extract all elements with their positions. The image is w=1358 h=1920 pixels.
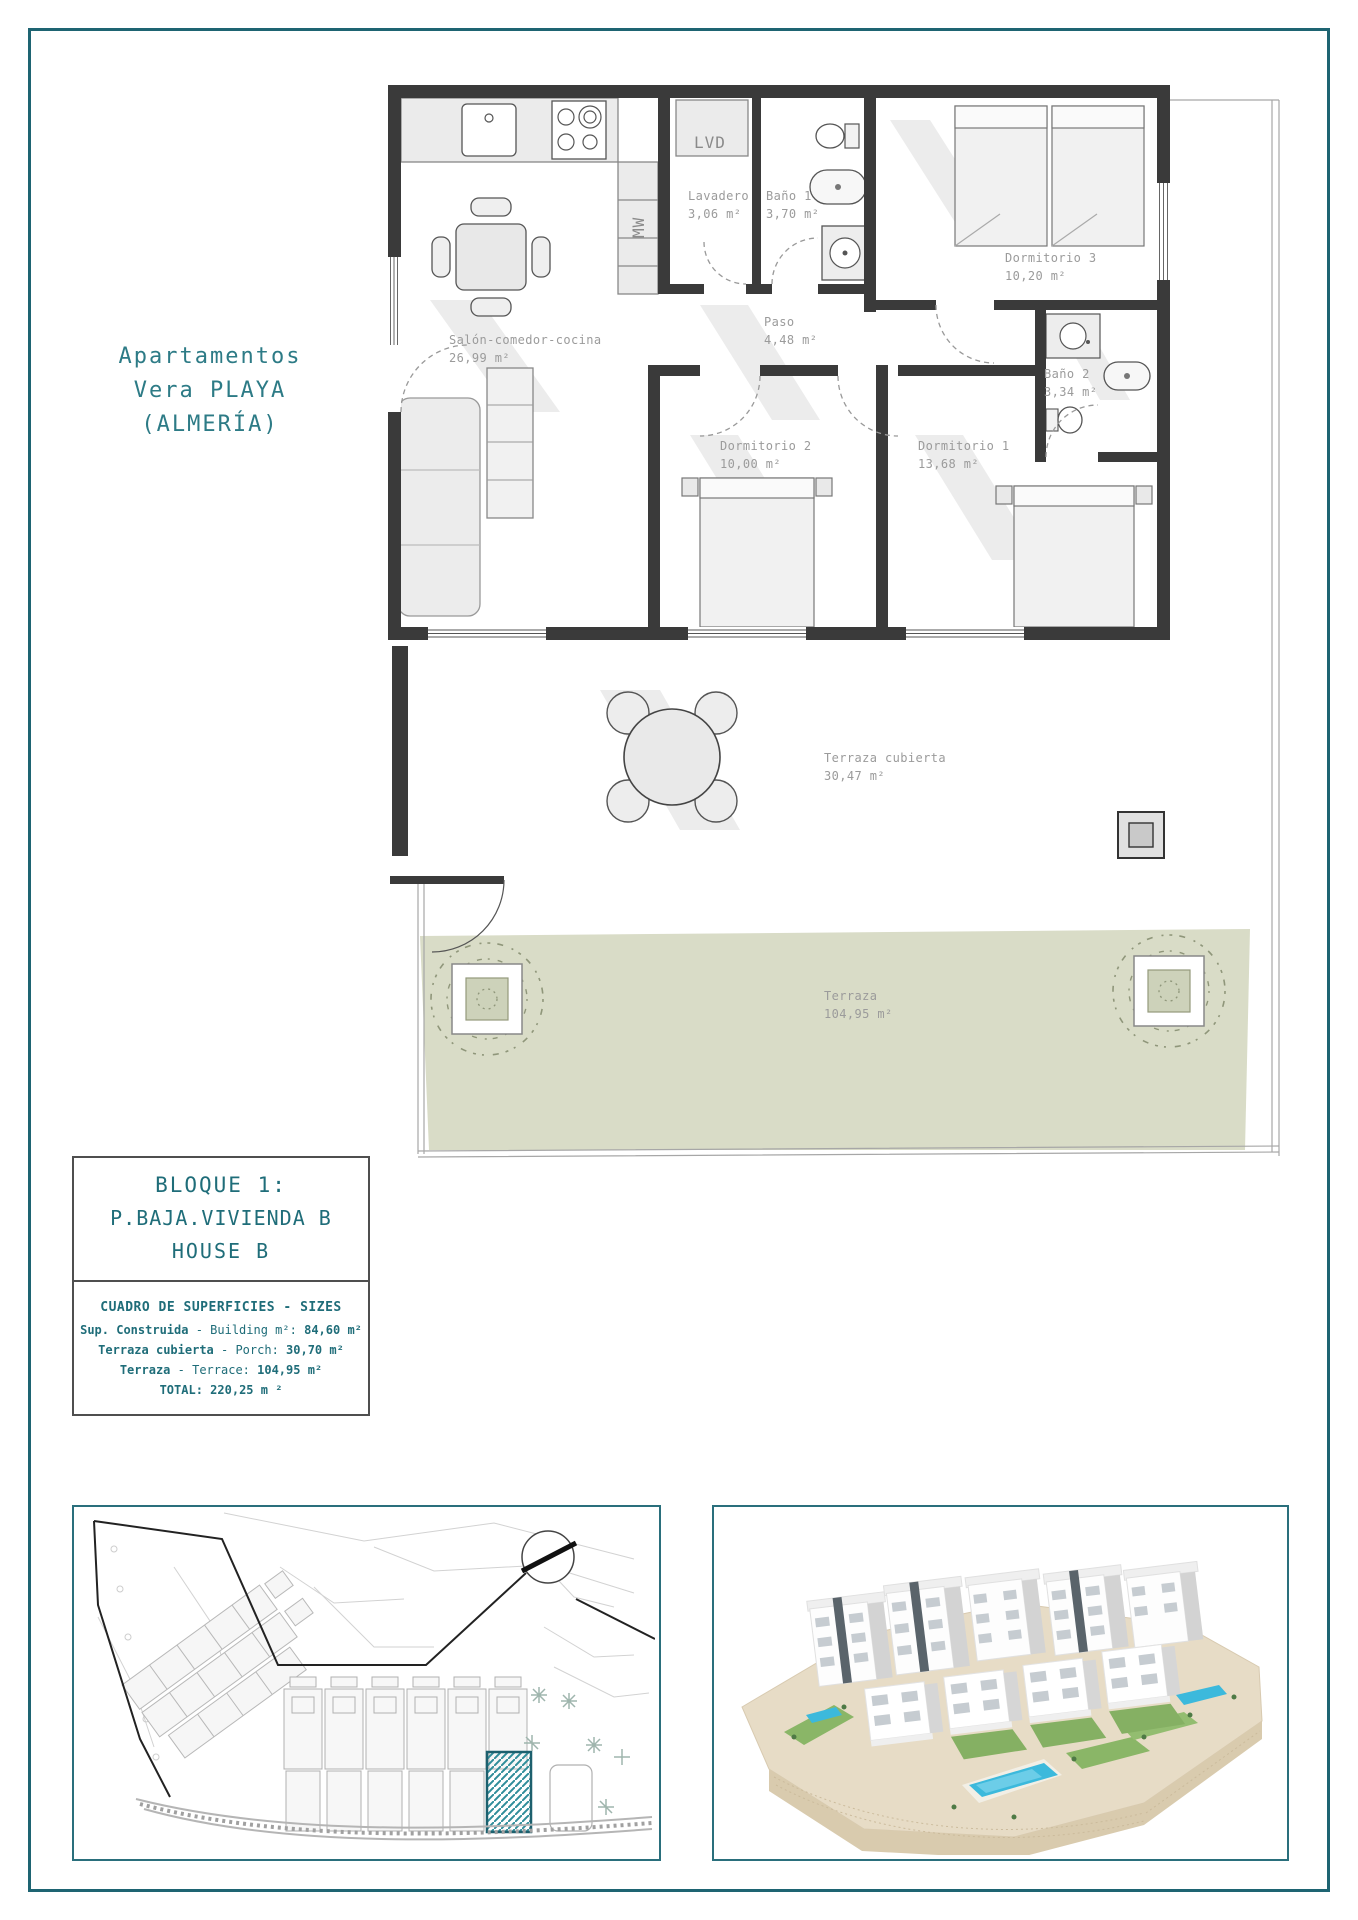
dining-set: [432, 198, 550, 316]
block-title-line3: HOUSE B: [78, 1235, 364, 1268]
label-bano1: Baño 1: [766, 189, 812, 203]
label-lavadero-area: 3,06 m²: [688, 207, 741, 221]
bbq-column: [1118, 812, 1164, 858]
label-bano2: Baño 2: [1044, 367, 1090, 381]
label-salon: Salón-comedor-cocina: [449, 333, 602, 347]
sizes-row-porch: Terraza cubierta - Porch: 30,70 m²: [76, 1340, 366, 1360]
label-terraza-area: 104,95 m²: [824, 1007, 893, 1021]
sizes-row-porch-value: 30,70 m²: [286, 1343, 344, 1357]
sizes-row-building-value: 84,60 m²: [304, 1323, 362, 1337]
project-title-line1: Apartamentos: [76, 340, 344, 374]
label-dormitorio1: Dormitorio 1: [918, 439, 1010, 453]
highlighted-unit-hatch: [487, 1752, 531, 1832]
project-title: Apartamentos Vera PLAYA (ALMERÍA): [76, 340, 344, 442]
sizes-row-terrace-en: - Terrace:: [178, 1363, 250, 1377]
site-plan: [74, 1507, 655, 1855]
block-title-line1: BLOQUE 1:: [78, 1168, 364, 1202]
label-lavadero: Lavadero: [688, 189, 749, 203]
label-dormitorio1-area: 13,68 m²: [918, 457, 979, 471]
info-box: BLOQUE 1: P.BAJA.VIVIENDA B HOUSE B CUAD…: [72, 1156, 370, 1416]
label-dormitorio2-area: 10,00 m²: [720, 457, 781, 471]
plan-sheet-page: Apartamentos Vera PLAYA (ALMERÍA): [0, 0, 1358, 1920]
bedroom3-beds: [955, 106, 1144, 246]
bedroom1-bed: [996, 486, 1152, 627]
render-3d: [714, 1507, 1283, 1855]
sizes-table-title: CUADRO DE SUPERFICIES - SIZES: [76, 1298, 366, 1318]
terrace-furniture: [390, 692, 1164, 952]
project-title-line3: (ALMERÍA): [76, 408, 344, 442]
render-3d-box: [712, 1505, 1289, 1861]
sizes-row-terrace: Terraza - Terrace: 104,95 m²: [76, 1360, 366, 1380]
label-mw: MW: [629, 217, 648, 238]
label-paso: Paso: [764, 315, 795, 329]
sizes-row-total-es: TOTAL:: [160, 1383, 203, 1397]
compass: [522, 1531, 576, 1583]
label-salon-area: 26,99 m²: [449, 351, 510, 365]
label-paso-area: 4,48 m²: [764, 333, 817, 347]
sizes-row-total-value: 220,25 m ²: [210, 1383, 282, 1397]
label-dormitorio3: Dormitorio 3: [1005, 251, 1097, 265]
project-title-line2: Vera PLAYA: [76, 374, 344, 408]
outdoor-table: [624, 709, 720, 805]
sizes-row-porch-en: - Porch:: [221, 1343, 279, 1357]
sizes-table: CUADRO DE SUPERFICIES - SIZES Sup. Const…: [74, 1282, 368, 1414]
sizes-row-total: TOTAL: 220,25 m ²: [76, 1380, 366, 1400]
floor-plan: Salón-comedor-cocina 26,99 m² Lavadero 3…: [330, 60, 1290, 1180]
sizes-row-porch-es: Terraza cubierta: [98, 1343, 214, 1357]
bath1-fixtures: [810, 124, 868, 280]
block-title: BLOQUE 1: P.BAJA.VIVIENDA B HOUSE B: [74, 1158, 368, 1282]
sizes-row-terrace-value: 104,95 m²: [257, 1363, 322, 1377]
label-terraza-cubierta-area: 30,47 m²: [824, 769, 885, 783]
label-dormitorio3-area: 10,20 m²: [1005, 269, 1066, 283]
bedroom2-bed: [682, 478, 832, 627]
sofa: [398, 398, 480, 616]
sizes-row-building-en: - Building m²:: [196, 1323, 297, 1337]
label-dormitorio2: Dormitorio 2: [720, 439, 812, 453]
sizes-row-terrace-es: Terraza: [120, 1363, 171, 1377]
label-terraza-cubierta: Terraza cubierta: [824, 751, 946, 765]
site-plan-box: [72, 1505, 661, 1861]
label-bano2-area: 3,34 m²: [1044, 385, 1097, 399]
sizes-row-building: Sup. Construida - Building m²: 84,60 m²: [76, 1320, 366, 1340]
site-trees-left: [111, 1546, 159, 1760]
label-bano1-area: 3,70 m²: [766, 207, 819, 221]
sizes-row-building-es: Sup. Construida: [80, 1323, 188, 1337]
label-terraza: Terraza: [824, 989, 877, 1003]
block-title-line2: P.BAJA.VIVIENDA B: [78, 1202, 364, 1235]
tv-unit: [487, 368, 533, 518]
label-lvd: LVD: [694, 133, 726, 152]
